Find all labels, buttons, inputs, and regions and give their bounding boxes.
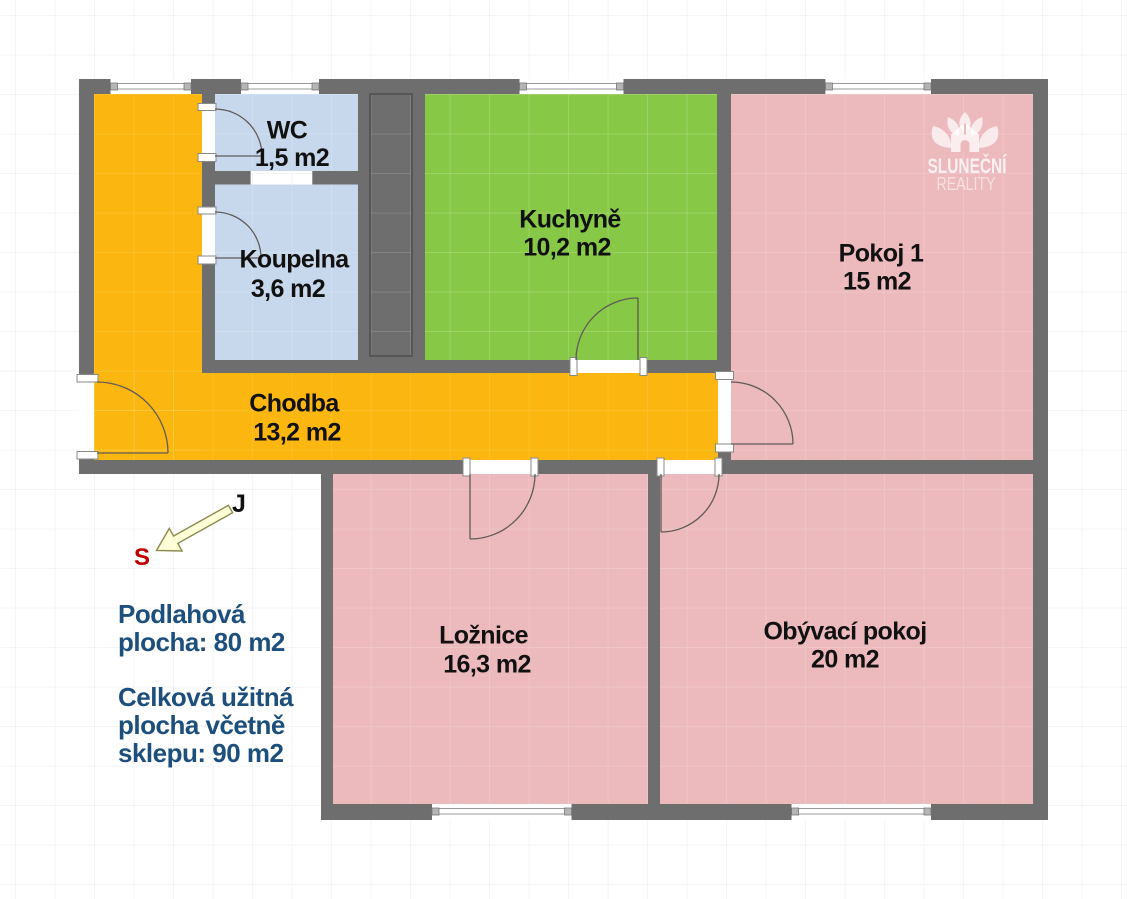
- svg-text:20 m2: 20 m2: [811, 646, 879, 674]
- svg-text:plocha včetně: plocha včetně: [118, 710, 285, 740]
- svg-text:3,6 m2: 3,6 m2: [251, 275, 325, 303]
- svg-text:15 m2: 15 m2: [843, 268, 911, 296]
- svg-text:Chodba: Chodba: [249, 390, 340, 418]
- svg-text:Kuchyně: Kuchyně: [519, 206, 621, 234]
- svg-text:1,5 m2: 1,5 m2: [255, 144, 329, 172]
- svg-text:Ložnice: Ložnice: [439, 622, 529, 650]
- svg-text:WC: WC: [267, 117, 308, 145]
- svg-text:sklepu: 90 m2: sklepu: 90 m2: [118, 738, 284, 768]
- svg-text:Podlahová: Podlahová: [118, 599, 246, 629]
- svg-text:13,2 m2: 13,2 m2: [253, 419, 341, 447]
- svg-text:S: S: [134, 544, 150, 571]
- svg-text:Pokoj 1: Pokoj 1: [839, 240, 924, 268]
- svg-text:plocha: 80 m2: plocha: 80 m2: [118, 627, 285, 657]
- svg-text:Celková užitná: Celková užitná: [118, 682, 294, 712]
- svg-text:Koupelna: Koupelna: [239, 246, 350, 274]
- svg-text:J: J: [232, 490, 246, 518]
- svg-text:Obývací pokoj: Obývací pokoj: [763, 618, 926, 646]
- svg-text:REALITY: REALITY: [937, 174, 996, 194]
- svg-text:10,2 m2: 10,2 m2: [523, 234, 611, 262]
- svg-text:16,3 m2: 16,3 m2: [443, 651, 531, 679]
